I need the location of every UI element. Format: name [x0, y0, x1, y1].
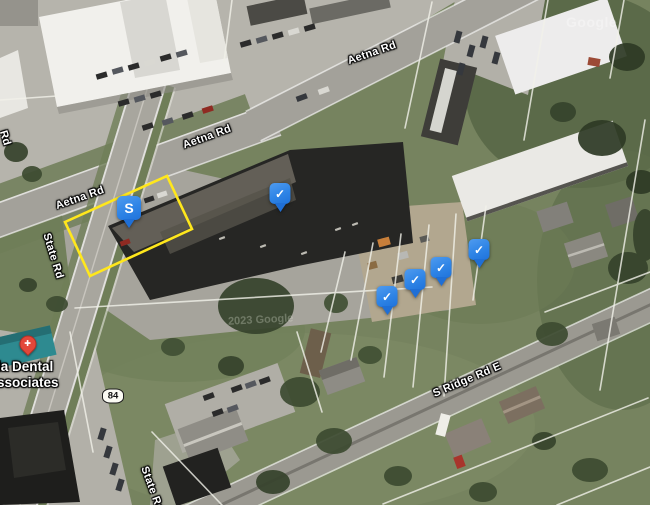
satellite-imagery	[0, 0, 650, 505]
check-pin-tail	[409, 289, 421, 298]
route-84-shield: 84	[102, 389, 124, 404]
check-pin-tail	[274, 203, 286, 212]
check-pin-5[interactable]: ✓	[469, 239, 490, 268]
subject-pin[interactable]: S	[117, 196, 141, 228]
check-pin-tail	[381, 306, 393, 315]
check-pin-3[interactable]: ✓	[405, 269, 426, 298]
business-label-line2: ssociates	[0, 375, 59, 391]
route-84-number: 84	[108, 391, 119, 402]
medical-cross-icon: ✚	[16, 332, 40, 356]
checkmark-icon: ✓	[377, 286, 398, 307]
check-pin-2[interactable]: ✓	[377, 286, 398, 315]
check-pin-tail	[435, 277, 447, 286]
subject-pin-icon: S	[117, 196, 141, 220]
checkmark-icon: ✓	[405, 269, 426, 290]
business-label-line1: la Dental	[0, 359, 59, 375]
checkmark-icon: ✓	[431, 257, 452, 278]
checkmark-icon: ✓	[469, 239, 490, 260]
google-watermark: Google	[566, 14, 617, 30]
check-pin-1[interactable]: ✓	[270, 183, 291, 212]
check-pin-4[interactable]: ✓	[431, 257, 452, 286]
satellite-map-view[interactable]: Aetna Rd Aetna Rd Aetna Rd State Rd Stat…	[0, 0, 650, 505]
check-pin-tail	[473, 259, 485, 268]
business-label-dental: la Dental ssociates	[0, 359, 59, 390]
checkmark-icon: ✓	[270, 183, 291, 204]
subject-pin-tail	[123, 219, 135, 228]
dental-pin[interactable]: ✚	[19, 334, 37, 357]
